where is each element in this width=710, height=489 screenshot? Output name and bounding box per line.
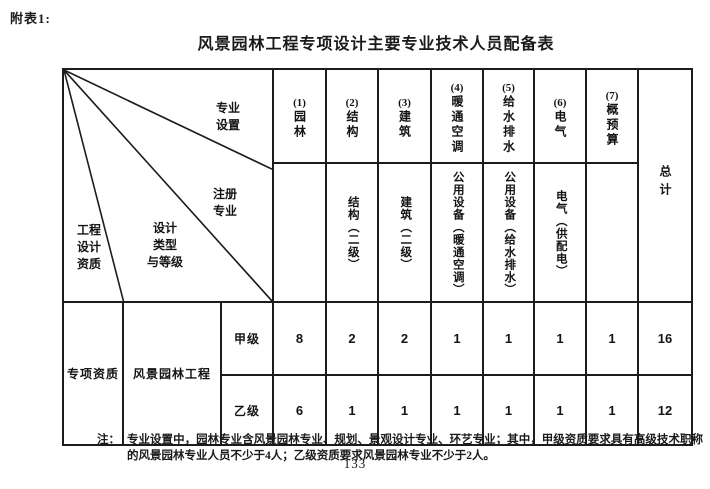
col-major-label: 结构 xyxy=(346,110,358,140)
registered-header-structure: 结构（二级） xyxy=(326,163,378,302)
cell-grade-a-architecture: 2 xyxy=(378,302,431,375)
col-header-hvac: (4)暖通空调 xyxy=(431,69,483,163)
grade-a-label: 甲级 xyxy=(221,302,273,375)
col-number: (7) xyxy=(606,90,619,103)
cell-grade-a-water: 1 xyxy=(483,302,534,375)
corner-label-engineering-qualification: 工程 设计 资质 xyxy=(77,222,101,273)
registered-header-water-supply-drainage: 公用设备（给水排水） xyxy=(483,163,534,302)
col-header-budget: (7)概预算 xyxy=(586,69,638,163)
qualification-cell: 专项资质 xyxy=(63,302,123,445)
total-header-label: 总计 xyxy=(659,165,671,201)
cell-grade-a-hvac: 1 xyxy=(431,302,483,375)
cell-grade-a-structure: 2 xyxy=(326,302,378,375)
col-number: (1) xyxy=(293,97,306,110)
col-major-label: 概预算 xyxy=(606,103,618,148)
col-major-label: 给水排水 xyxy=(503,95,515,155)
cell-grade-a-electrical: 1 xyxy=(534,302,586,375)
col-header-electrical: (6)电气 xyxy=(534,69,586,163)
registered-header-budget-empty xyxy=(586,163,638,302)
col-number: (3) xyxy=(398,97,411,110)
diagonal-header-cell: 专业 设置 注册 专业 设计 类型 与等级 工程 设计 资质 xyxy=(63,69,273,302)
page-number: 133 xyxy=(0,456,710,472)
col-number: (4) xyxy=(451,82,464,95)
staffing-table: 专业 设置 注册 专业 设计 类型 与等级 工程 设计 资质 (1)园林 (2)… xyxy=(62,68,693,446)
cell-grade-a-budget: 1 xyxy=(586,302,638,375)
corner-label-design-type-grade: 设计 类型 与等级 xyxy=(147,220,183,271)
col-header-garden: (1)园林 xyxy=(273,69,326,163)
attachment-table-label: 附表1: xyxy=(10,8,51,27)
col-number: (5) xyxy=(502,82,515,95)
col-major-label: 暖通空调 xyxy=(451,95,463,155)
col-major-label: 建筑 xyxy=(399,110,411,140)
col-header-architecture: (3)建筑 xyxy=(378,69,431,163)
col-major-label: 电气 xyxy=(554,110,566,140)
corner-label-major-setup: 专业 设置 xyxy=(216,100,240,134)
col-number: (6) xyxy=(554,97,567,110)
col-header-structure: (2)结构 xyxy=(326,69,378,163)
cell-grade-a-garden: 8 xyxy=(273,302,326,375)
cell-grade-a-total: 16 xyxy=(638,302,692,375)
registered-header-hvac: 公用设备（暖通空调） xyxy=(431,163,483,302)
registered-header-electrical: 电气（供配电） xyxy=(534,163,586,302)
corner-label-registered-major: 注册 专业 xyxy=(213,186,237,220)
registered-header-architecture: 建筑（二级） xyxy=(378,163,431,302)
col-major-label: 园林 xyxy=(294,110,306,140)
col-number: (2) xyxy=(346,97,359,110)
col-header-water-supply-drainage: (5)给水排水 xyxy=(483,69,534,163)
page-title: 风景园林工程专项设计主要专业技术人员配备表 xyxy=(56,30,696,54)
col-header-total: 总计 xyxy=(638,69,692,302)
design-type-cell: 风景园林工程 xyxy=(123,302,221,445)
scanned-document-page: 附表1: 风景园林工程专项设计主要专业技术人员配备表 专业 设置 注册 专业 设… xyxy=(0,0,710,489)
registered-header-garden-empty xyxy=(273,163,326,302)
